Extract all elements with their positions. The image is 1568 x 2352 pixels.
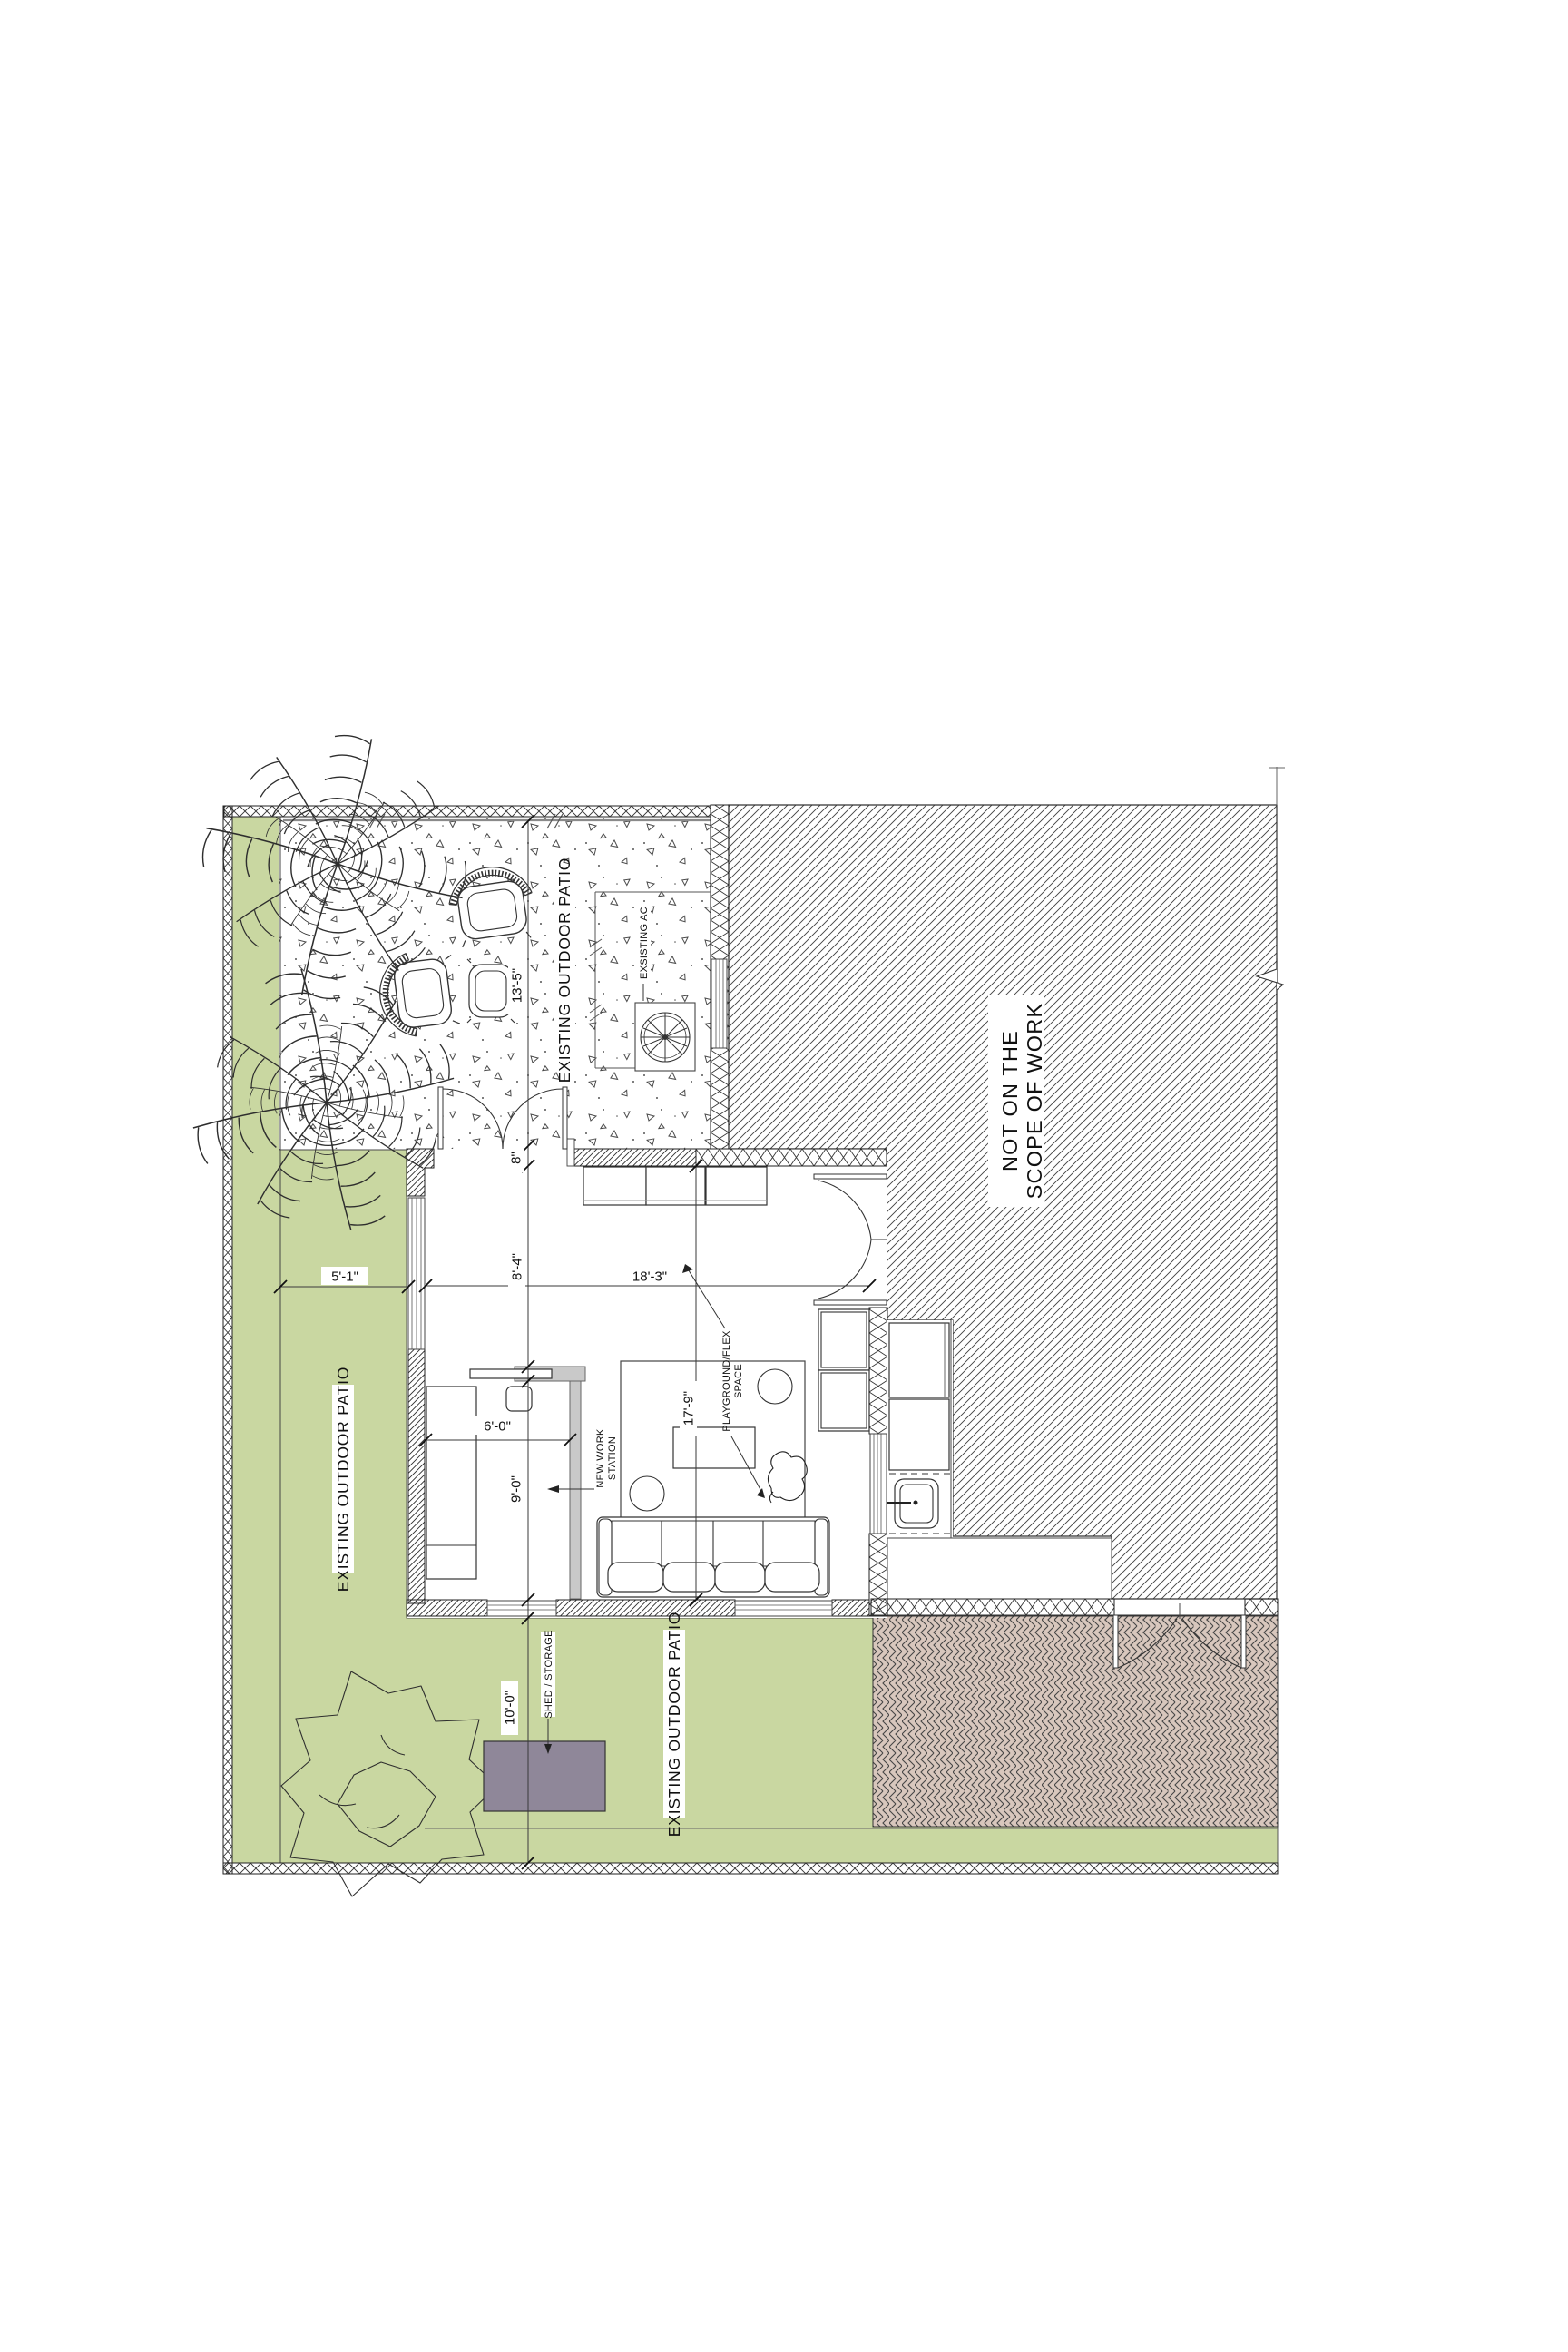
- side-walkway: [887, 1538, 1112, 1599]
- boundary-bottom: [223, 1863, 1278, 1874]
- dim-6-0: 6'-0": [484, 1418, 511, 1434]
- bench-storage: [426, 1387, 476, 1579]
- shed: [484, 1741, 605, 1811]
- wall-south-2: [556, 1600, 735, 1616]
- sofa: [597, 1517, 829, 1597]
- wall-south-1: [407, 1600, 487, 1616]
- new-room: [407, 1087, 887, 1618]
- sink: [887, 1479, 938, 1528]
- label-shed: SHED / STORAGE: [544, 1630, 554, 1719]
- east-shelving: [818, 1309, 869, 1431]
- dim-9-0: 9'-0": [508, 1475, 524, 1503]
- patio-wall-window: [711, 959, 727, 1048]
- north-cabinets: [583, 1167, 767, 1205]
- label-patio-bottom: EXISTING OUTDOOR PATIO: [665, 1612, 683, 1837]
- site-plan-drawing: EXISTING OUTDOOR PATIO EXISTING OUTDOOR …: [0, 0, 1568, 2352]
- window-east: [870, 1434, 887, 1534]
- desk-return: [570, 1381, 581, 1599]
- label-work-line2: STATION: [607, 1436, 618, 1480]
- counter-2: [889, 1399, 949, 1470]
- property-line: [1269, 767, 1285, 805]
- kitchenette: [887, 1320, 953, 1538]
- label-existing-ac: EXSISTING AC: [639, 906, 650, 979]
- dim-8-4: 8'-4": [509, 1253, 524, 1280]
- boundary-top: [224, 806, 710, 817]
- dim-5-1: 5'-1": [331, 1269, 358, 1284]
- desk-shelf: [470, 1369, 552, 1378]
- dim-8: 8": [508, 1151, 524, 1164]
- wall-north-new: [574, 1149, 696, 1166]
- dim-13-5: 13'-5": [509, 968, 524, 1003]
- wall-north-existing: [696, 1149, 887, 1166]
- brick-patio: [873, 1616, 1278, 1827]
- wall-east-upper: [869, 1308, 887, 1434]
- label-play-line2: SPACE: [733, 1364, 744, 1398]
- site-plan-canvas: EXISTING OUTDOOR PATIO EXISTING OUTDOOR …: [0, 0, 1568, 2352]
- label-play-line1: PLAYGROUND/FLEX: [721, 1330, 732, 1432]
- dim-18-3: 18'-3": [632, 1269, 667, 1284]
- window-south-1: [487, 1601, 556, 1616]
- counter-1: [889, 1323, 949, 1397]
- side-table: [467, 959, 514, 1023]
- wall-south-3: [832, 1600, 869, 1616]
- dim-10-0: 10'-0": [502, 1690, 517, 1725]
- label-scope-line2: SCOPE OF WORK: [1023, 1003, 1046, 1200]
- ac-unit: [635, 1003, 695, 1071]
- boundary-left: [223, 806, 232, 1874]
- wall-west-lower: [408, 1349, 425, 1603]
- window-west: [408, 1198, 425, 1349]
- label-scope-line1: NOT ON THE: [998, 1030, 1022, 1171]
- label-patio-left: EXISTING OUTDOOR PATIO: [334, 1367, 352, 1592]
- window-south-2: [735, 1601, 832, 1616]
- door-jamb: [567, 1139, 574, 1166]
- label-patio-top: EXISTING OUTDOOR PATIO: [555, 857, 573, 1083]
- label-work-line1: NEW WORK: [595, 1428, 606, 1488]
- dim-17-9: 17'-9": [681, 1391, 696, 1426]
